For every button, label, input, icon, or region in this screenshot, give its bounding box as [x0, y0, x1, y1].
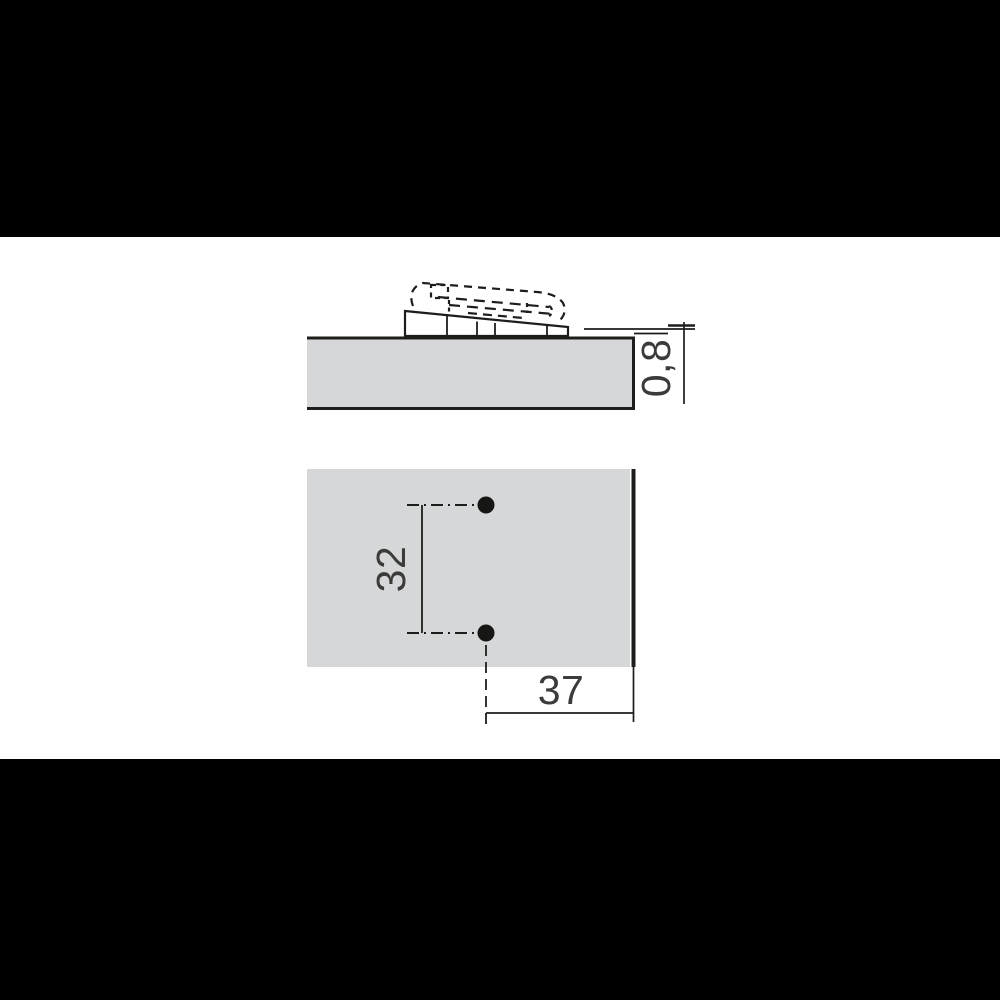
screenshot-stage: 0,8 32 37	[0, 0, 1000, 1000]
dimension-label-edge-distance: 37	[538, 667, 585, 713]
face-view: 32 37	[307, 469, 634, 724]
drill-hole-top	[478, 497, 495, 514]
dimension-label-hole-spacing: 32	[368, 546, 414, 593]
drill-hole-bottom	[478, 625, 495, 642]
panel-section-fill	[307, 337, 633, 409]
side-view: 0,8	[307, 283, 695, 409]
dimension-label-thickness: 0,8	[633, 339, 679, 398]
panel-face-fill	[307, 469, 630, 667]
technical-drawing: 0,8 32 37	[0, 0, 1000, 1000]
